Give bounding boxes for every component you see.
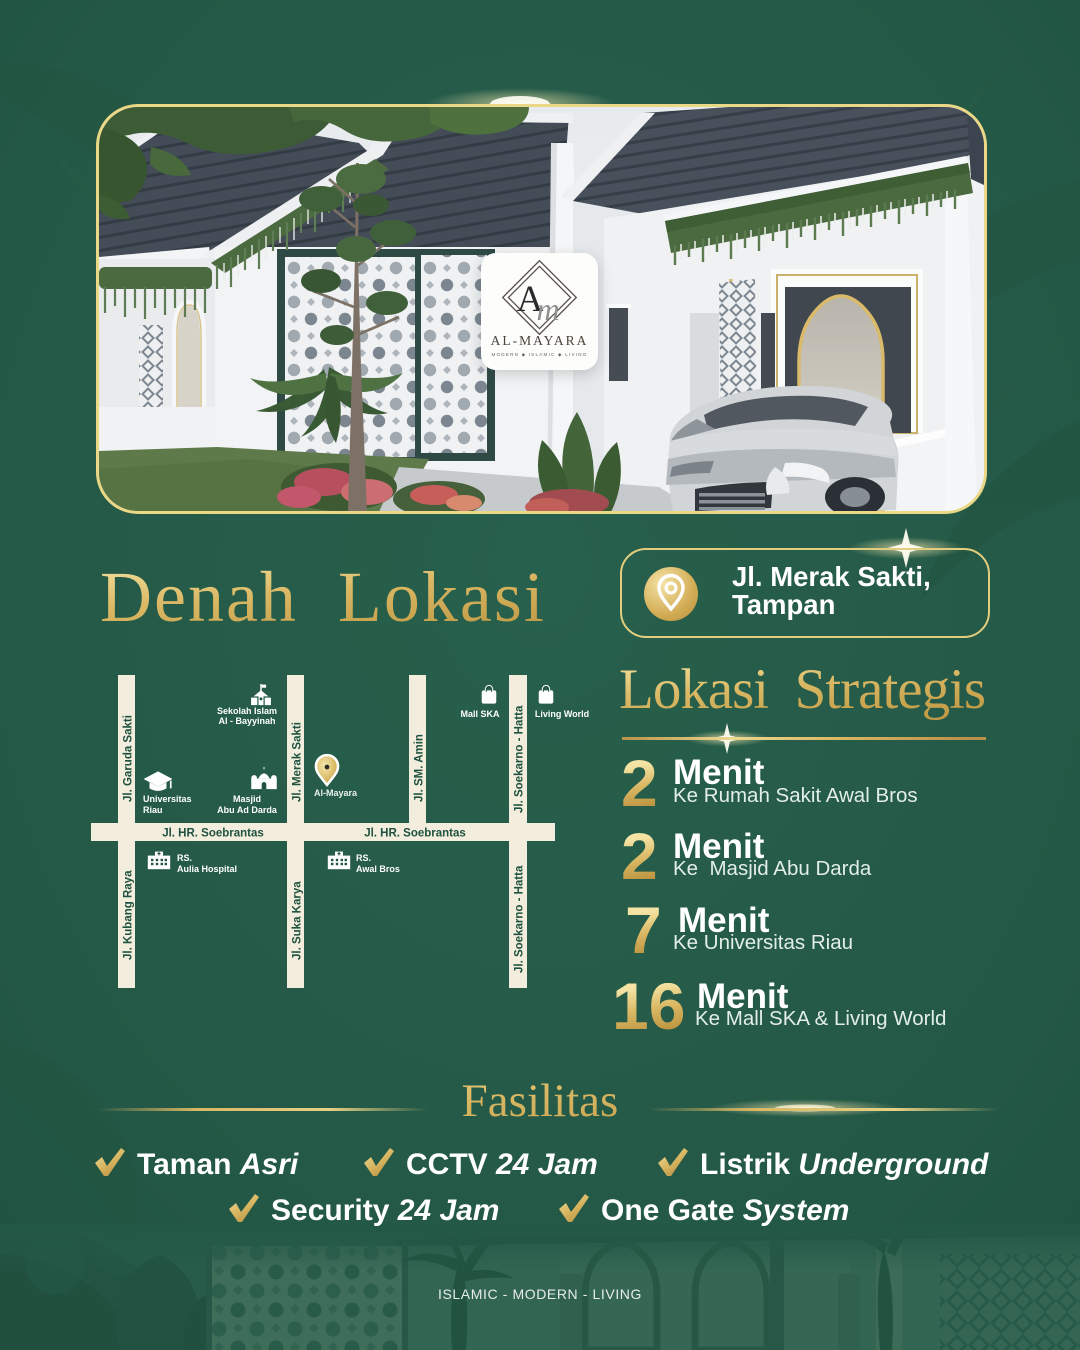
svg-text:Jl. Merak Sakti: Jl. Merak Sakti (292, 722, 304, 802)
svg-text:MODERN ◆ ISLAMIC ◆ LIVING: MODERN ◆ ISLAMIC ◆ LIVING (491, 352, 587, 357)
svg-text:Jl. SM. Amin: Jl. SM. Amin (414, 734, 426, 802)
svg-text:RS.: RS. (177, 853, 192, 863)
svg-text:Mall SKA: Mall SKA (460, 709, 500, 719)
svg-text:Al - Bayyinah: Al - Bayyinah (218, 716, 275, 726)
svg-text:Aulia Hospital: Aulia Hospital (177, 864, 237, 874)
svg-text:Jl. Garuda Sakti: Jl. Garuda Sakti (123, 715, 135, 802)
svg-text:Jl. Soekarno - Hatta: Jl. Soekarno - Hatta (514, 705, 526, 813)
svg-text:Abu Ad Darda: Abu Ad Darda (217, 805, 278, 815)
svg-text:m: m (536, 291, 559, 327)
svg-text:AL-MAYARA: AL-MAYARA (491, 333, 589, 348)
svg-text:Riau: Riau (143, 805, 163, 815)
svg-text:Jl. HR. Soebrantas: Jl. HR. Soebrantas (364, 828, 466, 840)
svg-text:Jl. Kubang Raya: Jl. Kubang Raya (123, 870, 135, 960)
svg-text:Jl. Suka Karya: Jl. Suka Karya (292, 881, 304, 960)
svg-text:Jl. Soekarno - Hatta: Jl. Soekarno - Hatta (514, 865, 526, 973)
svg-text:Masjid: Masjid (233, 794, 261, 804)
svg-text:Living World: Living World (535, 709, 589, 719)
svg-text:Sekolah Islam: Sekolah Islam (217, 706, 277, 716)
svg-text:Al-Mayara: Al-Mayara (314, 788, 358, 798)
svg-text:Universitas: Universitas (143, 794, 192, 804)
svg-text:Awal Bros: Awal Bros (356, 864, 400, 874)
svg-text:RS.: RS. (356, 853, 371, 863)
svg-text:Jl. HR. Soebrantas: Jl. HR. Soebrantas (162, 828, 264, 840)
